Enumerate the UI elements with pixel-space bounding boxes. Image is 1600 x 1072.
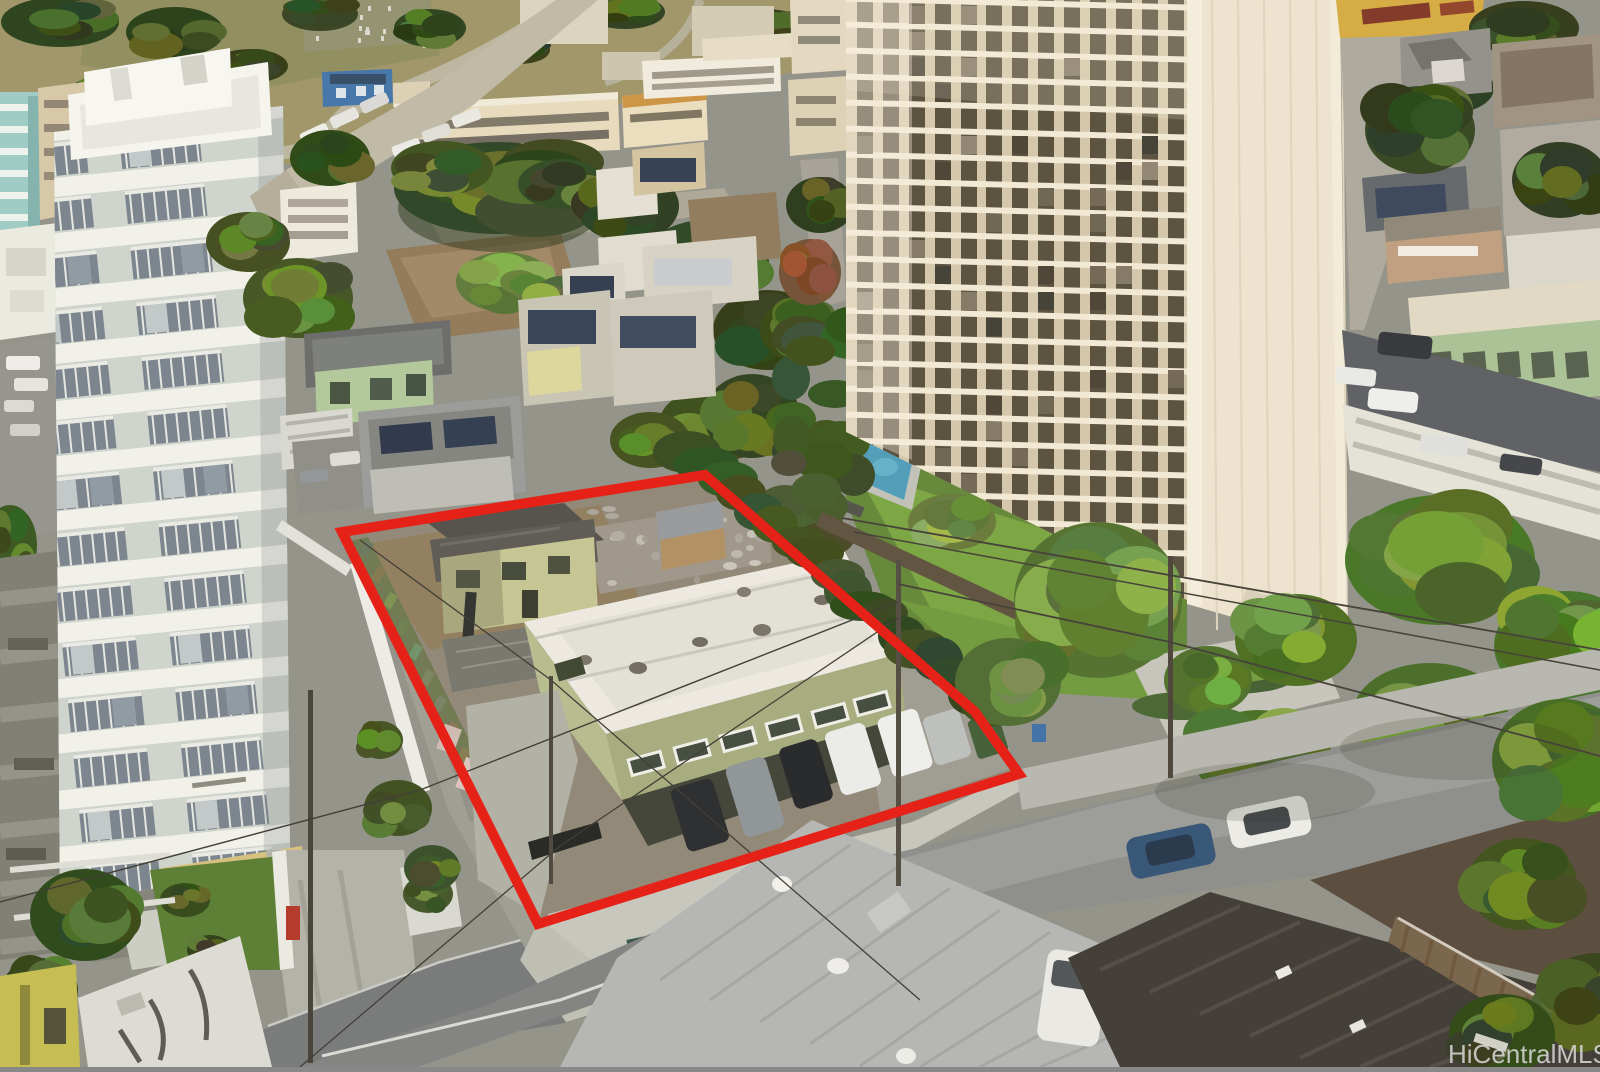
svg-text:HiCentralMLS: HiCentralMLS [1448, 1039, 1600, 1067]
